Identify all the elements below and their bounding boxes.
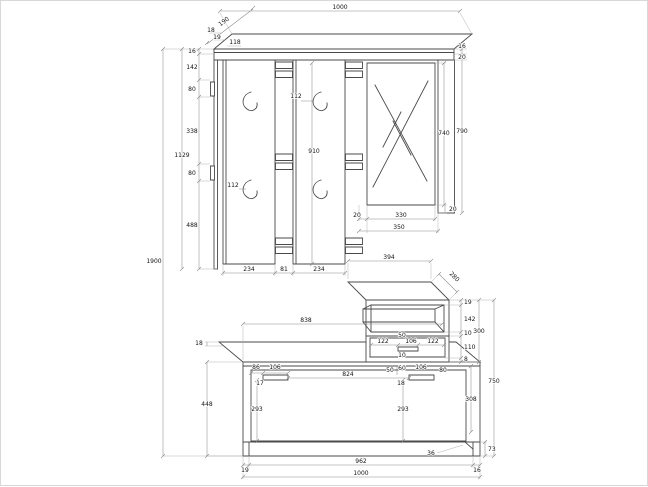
dim-chain-488: 488: [186, 222, 198, 229]
dim-board-length: 910: [308, 148, 320, 155]
dim-cabinet-height: 300: [473, 328, 485, 335]
dim-mirror-width: 330: [395, 212, 407, 219]
coat-boards: [223, 60, 345, 264]
dim-right-handle-margin-right: 80: [439, 367, 447, 374]
dim-cab-chain-142: 142: [464, 316, 476, 323]
dim-overall-height: 1900: [146, 258, 161, 265]
dim-cab-chain-8: 8: [464, 356, 468, 363]
furniture-technical-drawing: 1000 190 18 19 118 16 20 16 142 80 338 8…: [1, 1, 648, 487]
dim-bottom-right: 16: [473, 467, 481, 474]
dim-mirror-height: 740: [438, 130, 450, 137]
dim-drawer-margin-right: 122: [427, 338, 439, 345]
dim-chain-16: 16: [188, 48, 196, 55]
dim-right-handle-width: 106: [415, 364, 427, 371]
dim-mirror-gap-left: 20: [353, 212, 361, 219]
dim-total-height: 750: [488, 378, 500, 385]
dim-upper-total-width: 1000: [332, 4, 347, 11]
dim-cab-chain-110: 110: [464, 344, 476, 351]
lower-view: 394 280 19 142 10 110 8 300 122 50 106 1…: [195, 254, 500, 479]
dim-plinth-inset: 36: [427, 450, 435, 457]
dim-shelf-offset: 118: [229, 39, 241, 46]
dim-right-handle-height: 18: [397, 380, 405, 387]
dim-drawer-handle-width: 106: [405, 338, 417, 345]
dim-right-t1: 16: [458, 43, 466, 50]
dim-bench-top-thickness: 18: [195, 340, 203, 347]
dim-left-handle-margin: 86: [252, 364, 260, 371]
dim-board-left-width: 234: [243, 266, 255, 273]
top-shelf: [214, 34, 472, 60]
dim-shelf-t2: 19: [213, 34, 221, 41]
dim-left-handle-offset: 17: [256, 380, 264, 387]
dim-drawer-margin-left: 122: [377, 338, 389, 345]
dim-bench-top-width: 838: [300, 317, 312, 324]
dim-bench-side-height: 448: [201, 401, 213, 408]
dim-right-handle-top-offset: 50: [386, 367, 394, 374]
dim-door-height-left: 293: [251, 406, 263, 413]
dim-panel-height: 1129: [174, 152, 189, 159]
dim-drawer-gap: 10: [398, 352, 406, 359]
dim-mirror-total: 350: [393, 224, 405, 231]
dim-cabinet-depth: 280: [448, 270, 461, 283]
dim-chain-80b: 80: [188, 170, 196, 177]
dim-cabinet-width: 394: [383, 254, 395, 261]
dim-mirror-gap-bottom: 20: [449, 206, 457, 213]
dim-bottom-width: 962: [355, 458, 367, 465]
dim-right-t2: 20: [458, 54, 466, 61]
dim-left-handle-width: 106: [269, 364, 281, 371]
drawing-sheet: 1000 190 18 19 118 16 20 16 142 80 338 8…: [0, 0, 648, 486]
dim-hook-offset-top: 112: [290, 93, 302, 100]
dim-shelf-t1: 18: [207, 27, 215, 34]
cabinet-drawer-handle: [398, 347, 418, 351]
dim-inner-height: 308: [465, 396, 477, 403]
dim-board-right-width: 234: [313, 266, 325, 273]
dim-cab-chain-10: 10: [464, 330, 472, 337]
dim-door-height-right: 293: [397, 406, 409, 413]
dim-shelf-depth: 190: [217, 15, 231, 28]
dim-bottom-left: 19: [241, 467, 249, 474]
dim-handle-span: 824: [342, 371, 354, 378]
wall-panel-structure: [211, 34, 473, 269]
dim-cab-chain-19: 19: [464, 299, 472, 306]
dim-hook-offset-bottom: 112: [227, 182, 239, 189]
dim-chain-338: 338: [186, 128, 198, 135]
dim-chain-80a: 80: [188, 86, 196, 93]
dim-bottom-total: 1000: [353, 470, 368, 477]
dim-chain-142: 142: [186, 64, 198, 71]
dim-right-handle-margin-left: 60: [398, 365, 406, 372]
dim-board-gap: 81: [280, 266, 288, 273]
dim-side-height: 790: [456, 128, 468, 135]
dim-plinth-height: 73: [488, 446, 496, 453]
